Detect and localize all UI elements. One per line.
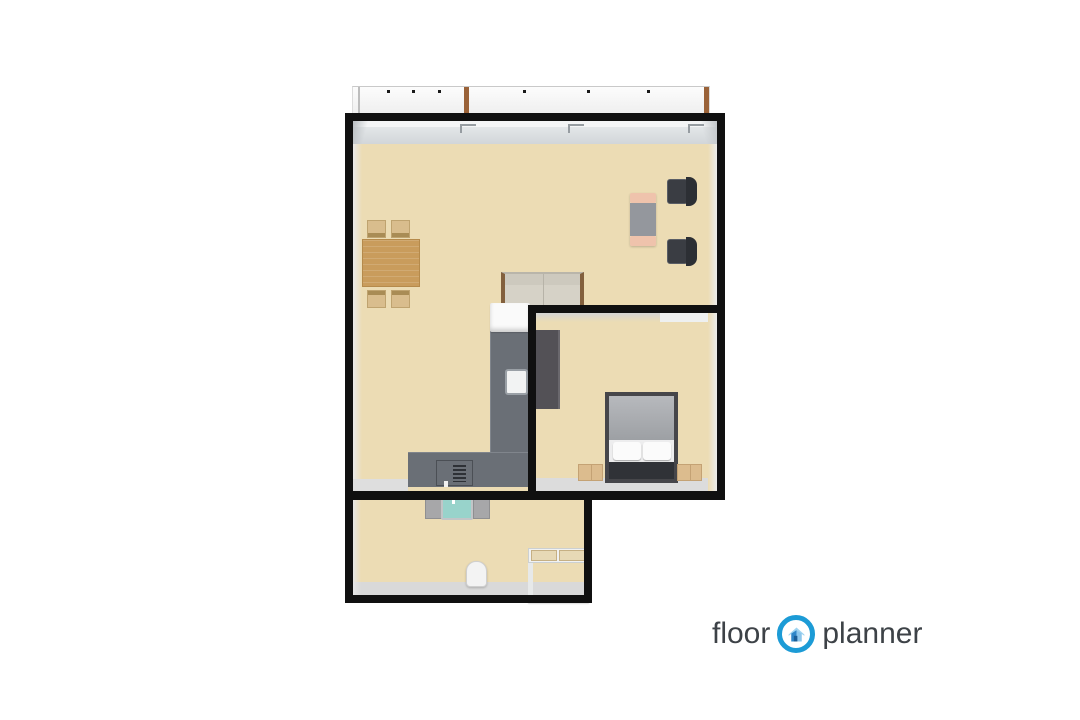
chair-seat <box>667 179 688 204</box>
kitchen-sink <box>505 369 528 395</box>
office-chair <box>667 237 697 266</box>
vanity-cabinet <box>473 498 490 519</box>
basket <box>559 550 585 561</box>
wardrobe <box>534 330 560 409</box>
logo-word-planner: planner <box>822 617 922 651</box>
vanity-cabinet <box>425 498 442 519</box>
dining-chair <box>367 220 386 238</box>
logo-word-floor: floor <box>712 617 770 651</box>
fridge <box>490 303 530 332</box>
window-mullion <box>460 124 476 133</box>
desk-top <box>630 203 656 236</box>
window-band <box>353 121 717 144</box>
floor-shading <box>353 479 408 491</box>
balcony-divider-post <box>464 87 469 114</box>
sofa <box>501 272 584 307</box>
bedroom-wall-top <box>528 305 725 313</box>
floorplanner-logo[interactable]: floor planner <box>712 613 922 655</box>
exterior-wall-top <box>345 113 725 121</box>
dining-chair <box>367 290 386 308</box>
toilet <box>466 561 487 587</box>
bed-headboard <box>609 462 674 479</box>
wall-face-shading <box>708 313 717 491</box>
chair-back <box>686 237 697 266</box>
oven-handle <box>444 481 448 487</box>
balcony <box>352 86 710 114</box>
railing-baluster <box>387 90 390 93</box>
railing-baluster <box>587 90 590 93</box>
bathroom-wall-right <box>584 500 592 603</box>
wall-face-shading <box>353 500 361 595</box>
railing-baluster <box>412 90 415 93</box>
floorplan-canvas: floor planner <box>0 0 1080 720</box>
dining-chair <box>391 290 410 308</box>
bed-blanket <box>609 396 674 440</box>
wall-face-shading <box>660 313 708 322</box>
stove-oven <box>436 460 473 486</box>
railing-baluster <box>523 90 526 93</box>
office-chair <box>667 177 697 206</box>
desk-end <box>630 236 656 246</box>
balcony-rail-post <box>358 87 360 114</box>
wall-face-shading <box>708 144 717 305</box>
basket <box>531 550 557 561</box>
floorplanner-house-icon <box>777 615 815 653</box>
oven-vents <box>453 465 466 482</box>
dining-table <box>362 239 420 287</box>
desk-end <box>630 193 656 203</box>
dining-chair <box>391 220 410 238</box>
wall-face-shading <box>353 144 362 491</box>
window-corner-shade <box>353 121 369 144</box>
window-mullion <box>568 124 584 133</box>
window-mullion <box>688 124 704 133</box>
bathroom-wall-bottom <box>345 595 592 603</box>
pillow <box>643 442 671 460</box>
bedroom-wall-vertical <box>528 305 536 500</box>
chair-back <box>686 177 697 206</box>
nightstand <box>677 464 702 481</box>
exterior-wall-left <box>345 113 353 603</box>
balcony-end-post <box>704 87 709 114</box>
railing-baluster <box>647 90 650 93</box>
chair-seat <box>667 239 688 264</box>
nightstand <box>578 464 603 481</box>
double-bed <box>605 392 678 483</box>
pillow <box>613 442 641 460</box>
desk <box>630 193 656 246</box>
railing-baluster <box>438 90 441 93</box>
